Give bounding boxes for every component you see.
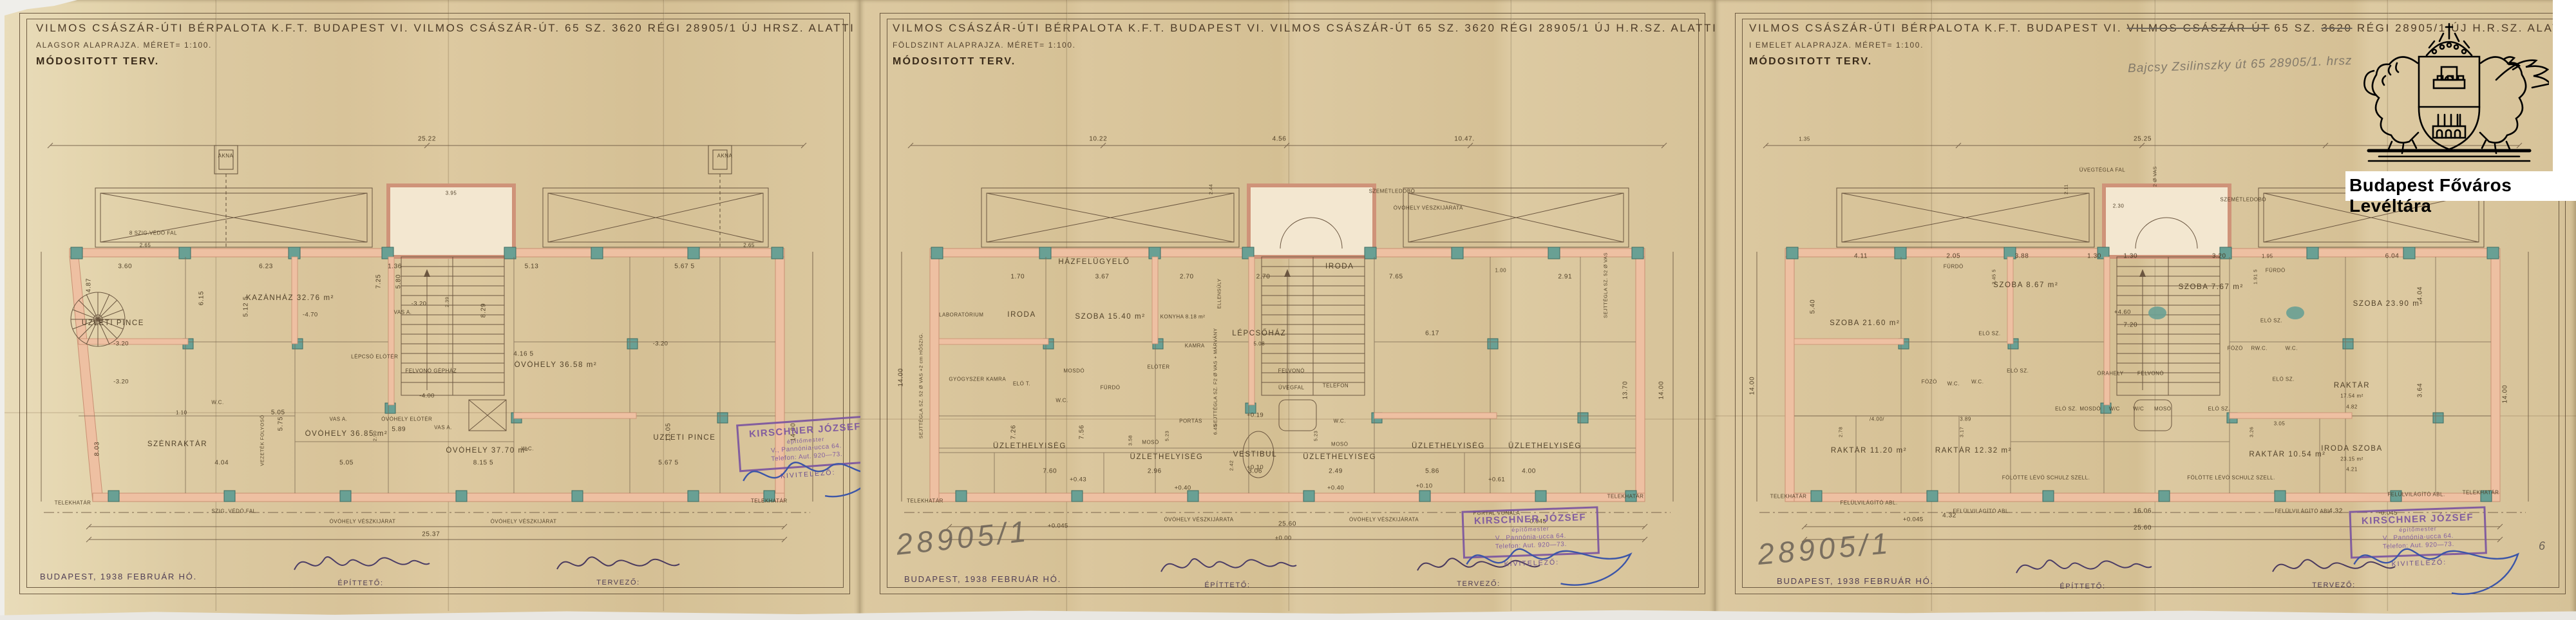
- owner-role-label: ÉPÍTTETŐ:: [1144, 581, 1311, 589]
- plan-label: 7.56: [1079, 424, 1086, 439]
- plan-label: 1.36: [388, 263, 402, 270]
- plan-label: LABORATÓRIUM: [939, 312, 983, 317]
- plan-label: 14.00: [1748, 376, 1756, 395]
- plan-label: HÁZFELÜGYELŐ: [1058, 258, 1130, 266]
- plan-label: IRODA: [1007, 311, 1036, 319]
- plan-label: SEJTTÉGLA SZ. 52 Ø VAS: [1602, 252, 1608, 318]
- plan-label: VAS A.: [394, 310, 412, 315]
- plan-label: 6.45: [1212, 424, 1218, 435]
- owner-role-label: ÉPÍTTETŐ:: [1999, 583, 2166, 590]
- plan-label: ÓVÓHELY VÉSZKIJÁRATA: [1164, 517, 1233, 523]
- plan-label: SZOBA 7.67 m²: [2179, 283, 2244, 291]
- plan-label: +0.61: [1488, 476, 1505, 484]
- plan-label: 1.00: [1495, 268, 1506, 274]
- plan-label: 10.47.: [1454, 135, 1474, 142]
- title-struck-street: VILMOS CSÁSZÁR-ÚT: [2127, 22, 2269, 34]
- plan-label: RAKTÁR 10.54 m²: [2249, 451, 2325, 458]
- owner-signature-block: ÉPÍTTETŐ:: [277, 544, 444, 587]
- plan-label: 2.49: [1329, 468, 1343, 475]
- plan-label: TELEKHATÁR: [1770, 494, 1807, 500]
- plan-label: +0.19: [1247, 411, 1264, 418]
- plan-drawing: [885, 126, 1690, 545]
- plan-label: KAZÁNHÁZ 32.76 m²: [246, 294, 334, 302]
- plan-label: 2 Ø VAS: [2152, 166, 2157, 187]
- plan-label: ÓVÓHELY VÉSZKIJÁRATA: [1349, 517, 1419, 523]
- owner-signature: [287, 544, 435, 580]
- plan-label: IRODA SZOBA: [2321, 445, 2383, 453]
- plan-label: ELŐ SZ.: [2007, 368, 2029, 374]
- plan-label: VAS A.: [434, 425, 452, 431]
- plan-label: +0.40: [1327, 485, 1344, 492]
- plan-label: ÓVÓHELY ELŐTÉR: [381, 417, 432, 422]
- plan-label: 6.17: [1425, 330, 1439, 337]
- plan-label: 2.96: [1148, 468, 1162, 475]
- plan-label: 5.67 5: [674, 263, 694, 270]
- plan-label: MOSDÓ: [1063, 368, 1084, 374]
- plan-label: 7.25: [375, 274, 383, 288]
- plan-label: 3.06: [1248, 468, 1262, 475]
- title-part: VILMOS CSÁSZÁR-ÚTI BÉRPALOTA K.F.T. BUDA…: [1749, 22, 2127, 34]
- contractor-stamp: KIRSCHNER JÓZSEF építőmester V., Pannóni…: [736, 415, 876, 484]
- plan-label: 25.60: [1278, 520, 1296, 527]
- plan-label: RW.C.: [2251, 345, 2268, 351]
- plan-label: FŐZŐ: [2228, 345, 2243, 351]
- title-struck-lot: 3620: [2321, 22, 2352, 34]
- plan-label: 25.25: [2134, 135, 2152, 142]
- plan-label: 6.15: [198, 290, 205, 305]
- plan-label: 5.89: [392, 426, 406, 433]
- plan-label: VEZETÉK FOLYOSÓ: [259, 415, 265, 465]
- plan-label: 4.32: [2329, 508, 2343, 515]
- plan-label: 2.30: [2113, 203, 2125, 209]
- plan-label: 6.04: [2385, 252, 2400, 259]
- modified-plan-label: MÓDOSITOTT TERV.: [36, 56, 835, 68]
- plan-label: RAKTÁR 11.20 m²: [1831, 447, 1907, 455]
- plan-label: SZOBA 21.60 m²: [1830, 319, 1900, 327]
- plan-label: 2.70: [1180, 274, 1194, 281]
- plan-label: 5.23: [1312, 431, 1318, 442]
- title-block: VILMOS CSÁSZÁR-ÚTI BÉRPALOTA K.F.T. BUDA…: [893, 22, 1690, 68]
- plan-label: ÜVEGTÉGLA FAL: [2079, 167, 2125, 173]
- plan-label: 5.13: [525, 263, 539, 270]
- plan-label: 8.15 5: [473, 460, 493, 467]
- plan-label: FELÜLVILÁGÍTÓ ABL.: [2275, 509, 2332, 514]
- plan-label: +0.40: [1174, 485, 1191, 492]
- plan-label: ÜZLETI PINCE: [653, 434, 715, 442]
- plan-label: ÜZLETHELYISÉG: [1303, 453, 1376, 461]
- plan-label: 4.87: [86, 278, 93, 293]
- plan-label: SZIG. VÉDŐ FAL: [211, 509, 256, 514]
- title-part: 65 SZ.: [2269, 22, 2321, 34]
- plan-label: -3.20: [412, 301, 427, 308]
- plan-label: W.C.: [211, 400, 223, 406]
- plan-label: VESTIBÜL: [1233, 451, 1277, 458]
- plan-label: ELŐ SZ.: [1978, 330, 2000, 336]
- budapest-coat-of-arms-icon: [2349, 18, 2549, 170]
- plan-label: 3.88: [2015, 252, 2029, 259]
- plan-label: 1.30: [2123, 252, 2137, 259]
- plan-label: GYÓGYSZER KAMRA: [949, 377, 1006, 382]
- plan-label: SZOBA 23.90 m²: [2353, 300, 2423, 308]
- owner-signature: [1153, 546, 1302, 582]
- plan-label: SZÉNRAKTÁR: [147, 440, 207, 448]
- plan-label: 8.03: [93, 441, 100, 456]
- plan-label: 4.82: [2346, 404, 2358, 409]
- plan-label: 7.20: [2123, 321, 2137, 328]
- plan-label: +0.43: [1070, 476, 1086, 484]
- plan-label: 1.30: [2087, 252, 2101, 259]
- floor-plan-ground: 10.224.5610.47.2.44SZEMÉTLEDOBÓÓVÓHELY V…: [885, 126, 1690, 545]
- plan-label: -4.00: [419, 393, 435, 400]
- plan-label: SEJTTÉGLA SZ. F2 Ø VAS + MÁRVÁNY: [1212, 328, 1218, 426]
- plan-label: ÓVÓHELY 37.70 m²: [446, 447, 529, 455]
- contractor-signature: [2343, 523, 2539, 613]
- plan-label: 4.04: [214, 460, 229, 467]
- plan-label: 3.26: [2248, 426, 2254, 437]
- plan-label: +4.60: [2114, 309, 2131, 316]
- plan-label: 8 SZIG.VÉDŐ FAL: [129, 230, 177, 236]
- plan-label: TELEKHATÁR: [907, 498, 943, 503]
- plan-label: -3.20: [113, 341, 129, 348]
- plan-label: 3.60: [118, 263, 132, 270]
- plan-label: VAS A.: [330, 417, 348, 422]
- date-note: BUDAPEST, 1938 FEBRUÁR HÓ.: [1777, 576, 1934, 586]
- plan-label: PORTÁS: [1179, 418, 1202, 424]
- plan-label: 4.00: [1522, 468, 1536, 475]
- plan-label: ELŐ T.: [1013, 380, 1030, 386]
- plan-label: 23.15 m²: [2340, 456, 2363, 462]
- plan-label: FÖLÖTTE LÉVŐ SCHULZ SZELL.: [2187, 475, 2275, 481]
- plan-label: 14.00: [1658, 380, 1665, 399]
- plan-label: +0.045: [1903, 516, 1924, 523]
- plan-label: ELŐ SZ.: [2273, 377, 2295, 382]
- plan-label: 2.70: [1256, 274, 1271, 281]
- plan-label: W.C.: [1056, 397, 1068, 403]
- plan-label: ÜVEGFAL: [1278, 385, 1304, 391]
- plan-label: TELEKHATÁR: [55, 500, 91, 506]
- plan-label: LÉPCSŐ ELŐTÉR: [351, 353, 398, 359]
- plan-label: W.C.: [1947, 380, 1960, 386]
- contractor-signature: [1455, 523, 1651, 600]
- plan-label: SZOBA 8.67 m²: [1993, 281, 2058, 289]
- plan-label: 1.70: [1010, 274, 1025, 281]
- plan-label: ÜZLETHELYISÉG: [993, 442, 1066, 450]
- plan-label: 14.00: [2501, 384, 2508, 403]
- plan-label: MOSÓ: [1142, 439, 1159, 445]
- plan-label: 4.56: [1273, 135, 1287, 142]
- plan-label: ÓRAHELY: [2097, 370, 2123, 376]
- owner-signature-block: ÉPÍTTETŐ:: [1144, 546, 1311, 589]
- plan-label: W/C: [2133, 406, 2144, 411]
- plan-label: 3.95: [446, 191, 457, 196]
- date-note: BUDAPEST, 1938 FEBRUÁR HÓ.: [40, 572, 197, 581]
- designer-role-label: TERVEZŐ:: [535, 579, 702, 587]
- plan-label: ÓVÓHELY VÉSZKIJÁRAT: [330, 519, 396, 525]
- plan-label: AKNA: [218, 153, 234, 158]
- plan-label: ±0.00: [1275, 535, 1292, 542]
- plan-label: ÓVÓHELY VÉSZKIJÁRAT: [491, 519, 557, 525]
- plan-label: 3.20: [2212, 252, 2226, 259]
- plan-label: FELÜLVILÁGÍTÓ ABL.: [1953, 509, 2010, 514]
- plan-label: 10.22: [1089, 135, 1107, 142]
- plan-label: W.C.: [2286, 345, 2298, 351]
- plan-label: ELŐ SZ.: [2260, 318, 2282, 324]
- sheet-title: VILMOS CSÁSZÁR-ÚTI BÉRPALOTA K.F.T. BUDA…: [36, 22, 835, 35]
- plan-label: -3.20: [113, 378, 129, 385]
- plan-label: 4.11: [1854, 252, 1868, 259]
- plan-label: ÓVÓHELY 36.85 m²: [305, 430, 388, 438]
- plan-label: FÜRDŐ: [2266, 268, 2286, 274]
- plan-label: SZEMÉTLEDOBÓ: [1369, 188, 1416, 194]
- plan-label: -4.70: [303, 311, 318, 318]
- plan-label: ÜZLETI PINCE: [82, 319, 144, 327]
- plan-label: TELEFON: [1323, 383, 1349, 389]
- plan-label: FELVONÓ: [2137, 370, 2164, 376]
- plan-label: W/C: [2109, 406, 2120, 411]
- plan-label: 17.54 m²: [2340, 393, 2363, 399]
- plan-label: 5.05: [271, 409, 285, 417]
- date-note: BUDAPEST, 1938 FEBRUÁR HÓ.: [904, 574, 1061, 584]
- sheet-ground-floor: VILMOS CSÁSZÁR-ÚTI BÉRPALOTA K.F.T. BUDA…: [860, 0, 1716, 620]
- archive-name: Budapest Főváros Levéltára: [2349, 175, 2576, 216]
- plan-label: 2.42: [1228, 460, 1234, 471]
- plan-label: FELÜLVILÁGÍTÓ ABL.: [2387, 492, 2445, 498]
- sheet-subtitle: FÖLDSZINT ALAPRAJZA. MÉRET= 1:100.: [893, 41, 1690, 50]
- plan-label: 4.21: [2346, 467, 2358, 473]
- plan-label: 3.17: [1958, 426, 1964, 437]
- plan-label: 1.35: [1799, 136, 1810, 142]
- contractor-stamp: KIRSCHNER JÓZSEF építőmester V., Pannóni…: [1461, 506, 1600, 569]
- plan-label: 4.04: [2417, 287, 2424, 301]
- plan-label: +0.10: [1416, 483, 1432, 490]
- owner-signature-block: ÉPÍTTETŐ:: [1999, 547, 2166, 590]
- plan-label: 1.91 5: [2253, 269, 2259, 285]
- modified-plan-label: MÓDOSITOTT TERV.: [893, 56, 1690, 68]
- plan-label: 13.05: [665, 422, 672, 441]
- sheet-title: VILMOS CSÁSZÁR-ÚTI BÉRPALOTA K.F.T. BUDA…: [893, 22, 1690, 35]
- plan-label: 5.05: [339, 460, 354, 467]
- plan-label: FÖLÖTTE LÉVŐ SCHULZ SZELL.: [2002, 475, 2090, 481]
- plan-label: FELVONÓ: [1278, 368, 1305, 374]
- plan-label: FÜRDŐ: [1101, 385, 1121, 391]
- plan-label: 25.22: [418, 135, 436, 142]
- plan-label: 16.06: [2134, 508, 2152, 515]
- plan-label: 2.65: [140, 243, 151, 249]
- plan-label: 5.67 5: [658, 460, 678, 467]
- plan-label: 3.05: [2274, 420, 2286, 426]
- plan-label: SZOBA 15.40 m²: [1075, 313, 1145, 321]
- plan-label: 5.86: [1425, 468, 1439, 475]
- plan-label: 4.16 5: [513, 351, 533, 358]
- plan-label: FŐZŐ: [1922, 379, 1937, 384]
- plan-label: ELŐ SZ.: [2055, 406, 2077, 411]
- plan-drawing: [24, 126, 829, 545]
- plan-label: 1.10: [176, 410, 187, 416]
- sheet-subtitle: ALAGSOR ALAPRAJZA. MÉRET= 1:100.: [36, 41, 835, 50]
- plan-label: ÓVÓHELY 36.58 m²: [515, 361, 598, 369]
- scanner-edge-left: [0, 0, 5, 620]
- plan-label: RAKTÁR 12.32 m²: [1935, 447, 2012, 455]
- plan-label: 1.95: [2262, 253, 2273, 259]
- plan-label: /4.00/: [1870, 417, 1884, 422]
- plan-label: 14.00: [898, 368, 905, 386]
- plan-label: ÜZLETHELYISÉG: [1130, 453, 1204, 461]
- plan-label: 13.70: [1622, 380, 1629, 399]
- plan-label: 7.26: [1010, 424, 1018, 439]
- plan-label: 2.39: [444, 297, 450, 308]
- plan-label: KONYHA 8.18 m²: [1160, 314, 1206, 319]
- plan-label: +0.045: [1048, 522, 1068, 529]
- plan-label: 8.29: [480, 303, 487, 318]
- pencil-page-number: 6: [2539, 540, 2545, 553]
- plan-label: FELVONÓ GÉPHÁZ: [405, 368, 457, 374]
- plan-label: 3.64: [2417, 382, 2424, 397]
- plan-label: 7.60: [1043, 468, 1057, 475]
- plan-label: SEJTTÉGLA SZ. 52 Ø VAS +2 cm HŐSZIG.: [918, 333, 924, 439]
- plan-label: ELLENSÚLY: [1216, 278, 1222, 308]
- owner-signature: [2009, 547, 2157, 583]
- plan-label: MOSÓ: [2154, 406, 2171, 411]
- contractor-stamp: KIRSCHNER JÓZSEF építőmester V., Pannóni…: [2349, 506, 2487, 569]
- plan-label: TELEKHATÁR: [1607, 494, 1644, 500]
- plan-label: ELŐTÉR: [1147, 364, 1170, 370]
- plan-label: ÜZLETHELYISÉG: [1412, 442, 1485, 450]
- plan-label: 4.32: [1942, 512, 1956, 519]
- owner-role-label: ÉPÍTTETŐ:: [277, 579, 444, 587]
- plan-label: 3.67: [1095, 274, 1110, 281]
- plan-label: 5.40: [1809, 299, 1816, 314]
- watermark-white-strip: [2553, 0, 2576, 193]
- plan-label: ÜZLETHELYISÉG: [1508, 442, 1582, 450]
- plan-label: 6.23: [259, 263, 273, 270]
- plan-label: -3.20: [653, 341, 668, 348]
- plan-label: 5.80: [395, 274, 402, 288]
- plan-label: IRODA: [1325, 263, 1354, 270]
- designer-signature-block: TERVEZŐ:: [535, 546, 702, 587]
- plan-label: FÜRDŐ: [1944, 263, 1964, 269]
- plan-label: 7.65: [1389, 274, 1403, 281]
- plan-label: AKNA: [717, 153, 733, 158]
- plan-label: 2.05: [1946, 252, 1960, 259]
- plan-label: 25.60: [2134, 525, 2152, 532]
- plan-label: MOSÓ: [1331, 442, 1348, 447]
- plan-label: KAMRA: [1185, 343, 1205, 349]
- plan-label: 3.89: [1960, 417, 1971, 422]
- plan-label: 3.58: [1128, 435, 1133, 446]
- floor-plan-basement: 25.22AKNAAKNA8 SZIG.VÉDŐ FAL2.652.653.95…: [24, 126, 829, 545]
- plan-label: FELÜLVILÁGÍTÓ ABL.: [1840, 500, 1897, 506]
- plan-label: 25.37: [422, 531, 440, 538]
- plan-label: 5.23: [1164, 431, 1170, 442]
- plan-label: ÓVÓHELY VÉSZKIJÁRATA: [1394, 205, 1463, 211]
- plan-label: MOSDÓ: [2079, 406, 2101, 411]
- plan-label: 5.75: [277, 416, 284, 431]
- plan-label: 2.44: [1208, 183, 1214, 194]
- title-block: VILMOS CSÁSZÁR-ÚTI BÉRPALOTA K.F.T. BUDA…: [36, 22, 835, 68]
- designer-signature: [551, 546, 686, 579]
- plan-label: 2.11: [2063, 183, 2069, 194]
- plan-label: RAKTÁR: [2334, 382, 2370, 390]
- sheet-basement: VILMOS CSÁSZÁR-ÚTI BÉRPALOTA K.F.T. BUDA…: [0, 0, 860, 620]
- plan-label: 5.08: [1253, 341, 1265, 347]
- plan-label: W.C.: [1334, 418, 1346, 424]
- plan-label: TELEKHATÁR: [2463, 489, 2499, 495]
- plan-label: ELŐ SZ.: [2208, 406, 2230, 411]
- plan-label: 2.78: [1838, 426, 1844, 437]
- plan-label: SZEMÉTLEDOBÓ: [2220, 196, 2266, 202]
- plan-label: W.C.: [1971, 379, 1984, 384]
- plan-label: LÉPCSŐHÁZ: [1232, 330, 1286, 337]
- plan-label: 2.91: [1558, 274, 1572, 281]
- plan-label: 2.65: [743, 243, 755, 249]
